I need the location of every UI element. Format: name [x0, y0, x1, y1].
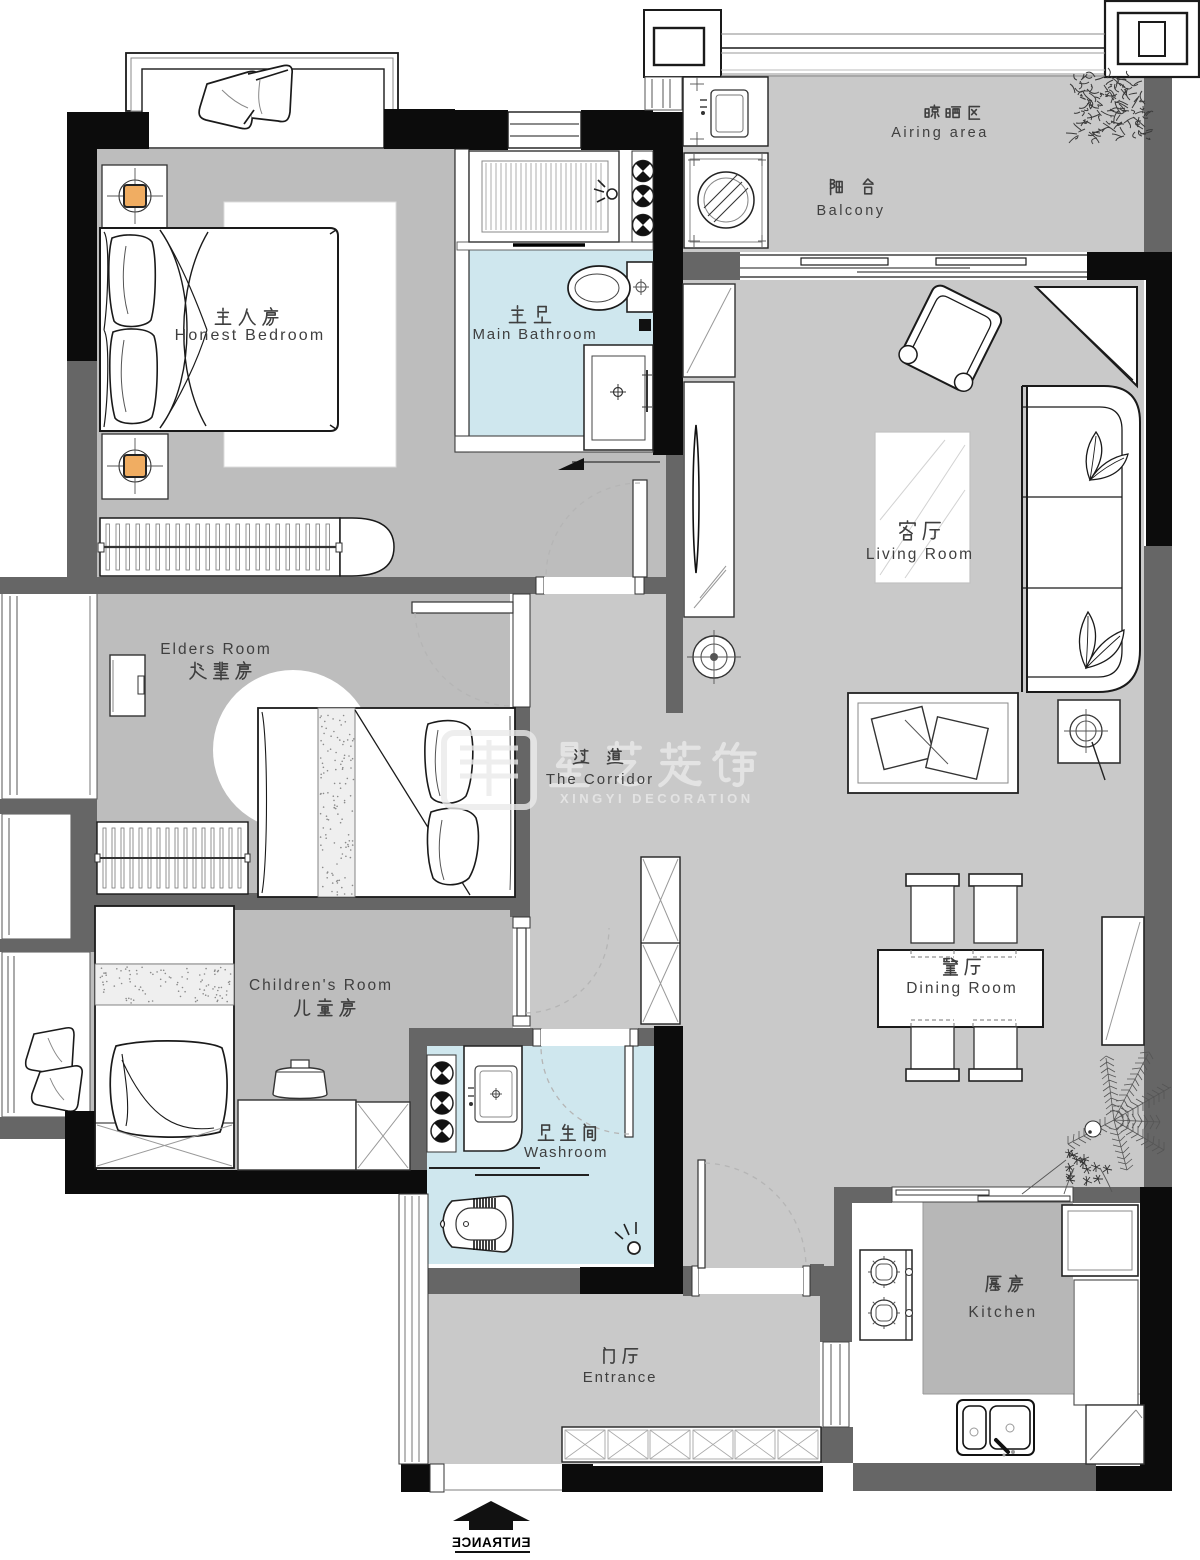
svg-text:Main Bathroom: Main Bathroom [472, 326, 597, 343]
svg-text:Dining Room: Dining Room [906, 980, 1018, 997]
svg-text:Children's Room: Children's Room [249, 977, 393, 994]
svg-text:ENTRANCE: ENTRANCE [451, 1535, 530, 1550]
svg-text:Honest Bedroom: Honest Bedroom [175, 327, 326, 344]
svg-text:Entrance: Entrance [583, 1369, 657, 1386]
svg-text:Living Room: Living Room [866, 546, 974, 563]
svg-text:The Corridor: The Corridor [546, 771, 654, 788]
svg-text:XINGYI DECORATION: XINGYI DECORATION [560, 791, 754, 806]
svg-text:Washroom: Washroom [524, 1144, 608, 1161]
svg-text:Balcony: Balcony [816, 203, 885, 219]
svg-text:Kitchen: Kitchen [968, 1304, 1037, 1321]
svg-text:Elders Room: Elders Room [160, 641, 272, 658]
svg-text:Airing area: Airing area [891, 125, 989, 141]
